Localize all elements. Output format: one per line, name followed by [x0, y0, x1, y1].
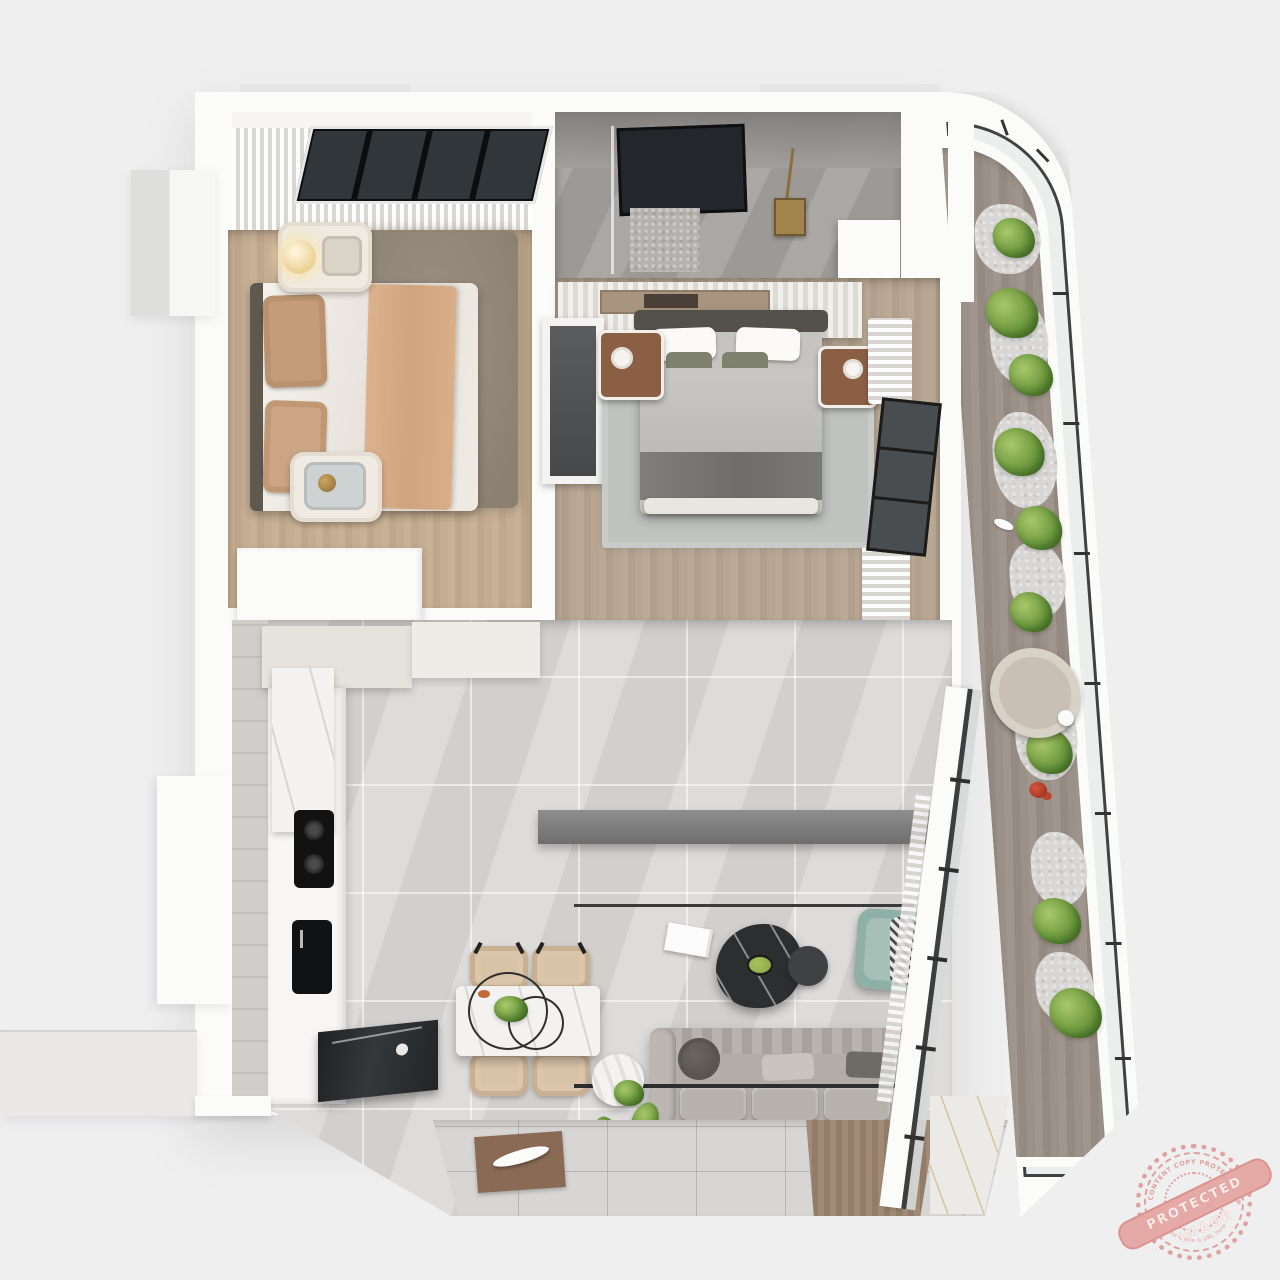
brass-shower-head [774, 198, 806, 236]
skylight-mullion [351, 129, 374, 201]
kitchen-marble-counter [272, 668, 334, 832]
partition-wall-band [538, 810, 948, 844]
globe-lamp [282, 240, 316, 274]
kitchen-hall-tiles [232, 620, 268, 1104]
round-pillow [678, 1038, 720, 1080]
kitchen-upper-cabinet [412, 622, 540, 678]
wardrobe-interior [550, 326, 596, 476]
bottom-wall [195, 1096, 271, 1116]
bathroom-mirror [617, 124, 748, 216]
skylight-mullion [411, 129, 434, 201]
floorplan-render: CONTENT COPY PROTECTION PLUGIN by Websit… [0, 0, 1280, 1280]
dining-chair [532, 946, 590, 990]
nightstand-walnut [598, 330, 664, 400]
headboard [250, 283, 263, 511]
orange-flower [478, 990, 490, 998]
railing-tick [1115, 1057, 1131, 1060]
bowl [396, 1043, 408, 1056]
burner [304, 820, 324, 840]
island-vein [332, 1026, 422, 1044]
railing-tick [1000, 119, 1008, 135]
track-light [574, 904, 914, 907]
duvet-fold [640, 368, 822, 454]
balcony-side-table [1057, 710, 1074, 726]
railing-tick [1095, 812, 1111, 815]
bedroom1-cabinet [237, 548, 422, 622]
pillow [262, 294, 327, 388]
table-plant [494, 996, 528, 1022]
railing-tick [1036, 149, 1050, 163]
cooktop [294, 810, 334, 888]
burner [304, 854, 324, 874]
gold-kettle [318, 474, 336, 492]
plate-decor [843, 359, 863, 379]
shelf-tray [644, 294, 698, 308]
exterior-wall-bump [157, 776, 233, 1004]
railing-tick [1074, 552, 1090, 555]
seat-cushion [752, 1086, 818, 1120]
coffee-side-table [788, 946, 828, 986]
dark-throw [640, 452, 822, 500]
fruit-bowl [746, 954, 774, 976]
exterior-shaft-block [131, 170, 215, 316]
nightstand-tray [322, 236, 362, 276]
dining-chair [532, 1052, 590, 1096]
nightstand [278, 222, 372, 292]
island-counter [318, 1020, 438, 1103]
seat-cushion [680, 1086, 746, 1120]
skylight-mullion [469, 129, 492, 201]
window-bar [875, 496, 929, 505]
sofa-pillow [761, 1053, 814, 1082]
window-bar [880, 446, 934, 455]
kitchen-sink-black [292, 920, 332, 994]
glass-partition [611, 126, 614, 274]
floor-plant [614, 1080, 644, 1106]
wall-patch-upper [948, 112, 974, 302]
faucet [300, 930, 303, 948]
nightstand [290, 452, 382, 522]
bathroom-white-block [838, 220, 900, 280]
mosaic-shower-floor [630, 208, 700, 272]
watermark-stamp: CONTENT COPY PROTECTION PLUGIN by Websit… [1136, 1144, 1252, 1260]
dining-chair [470, 1052, 528, 1096]
railing-tick [1084, 682, 1100, 685]
plate-decor [611, 347, 633, 369]
master-wardrobe [542, 318, 604, 484]
skylight-window [293, 126, 553, 204]
railing-tick [1105, 942, 1121, 945]
master-bed [640, 310, 822, 514]
railing-tick [1063, 422, 1079, 425]
foot-bench [644, 498, 818, 514]
red-flowers [1029, 782, 1048, 798]
railing-tick [1053, 292, 1069, 295]
entry-platform [0, 1030, 197, 1116]
master-curtain-stack [868, 318, 912, 404]
